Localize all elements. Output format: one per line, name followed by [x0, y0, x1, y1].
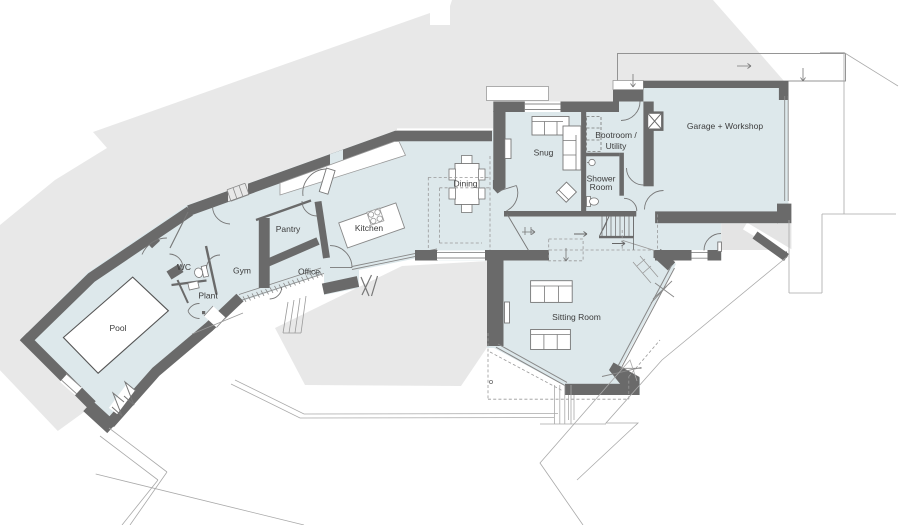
svg-text:Room: Room: [590, 182, 613, 192]
svg-text:Utility: Utility: [606, 141, 628, 151]
svg-text:Bootroom /: Bootroom /: [595, 130, 637, 140]
svg-text:Pool: Pool: [109, 323, 126, 333]
svg-text:Kitchen: Kitchen: [355, 223, 384, 233]
svg-text:Dining: Dining: [453, 179, 477, 189]
svg-text:Plant: Plant: [198, 291, 218, 301]
svg-text:Garage + Workshop: Garage + Workshop: [687, 121, 763, 131]
svg-text:Sitting Room: Sitting Room: [552, 312, 601, 322]
svg-text:Gym: Gym: [233, 266, 251, 276]
svg-text:WC: WC: [177, 262, 191, 272]
svg-text:Office: Office: [298, 267, 320, 277]
svg-text:Snug: Snug: [534, 148, 554, 158]
svg-text:Pantry: Pantry: [276, 224, 301, 234]
